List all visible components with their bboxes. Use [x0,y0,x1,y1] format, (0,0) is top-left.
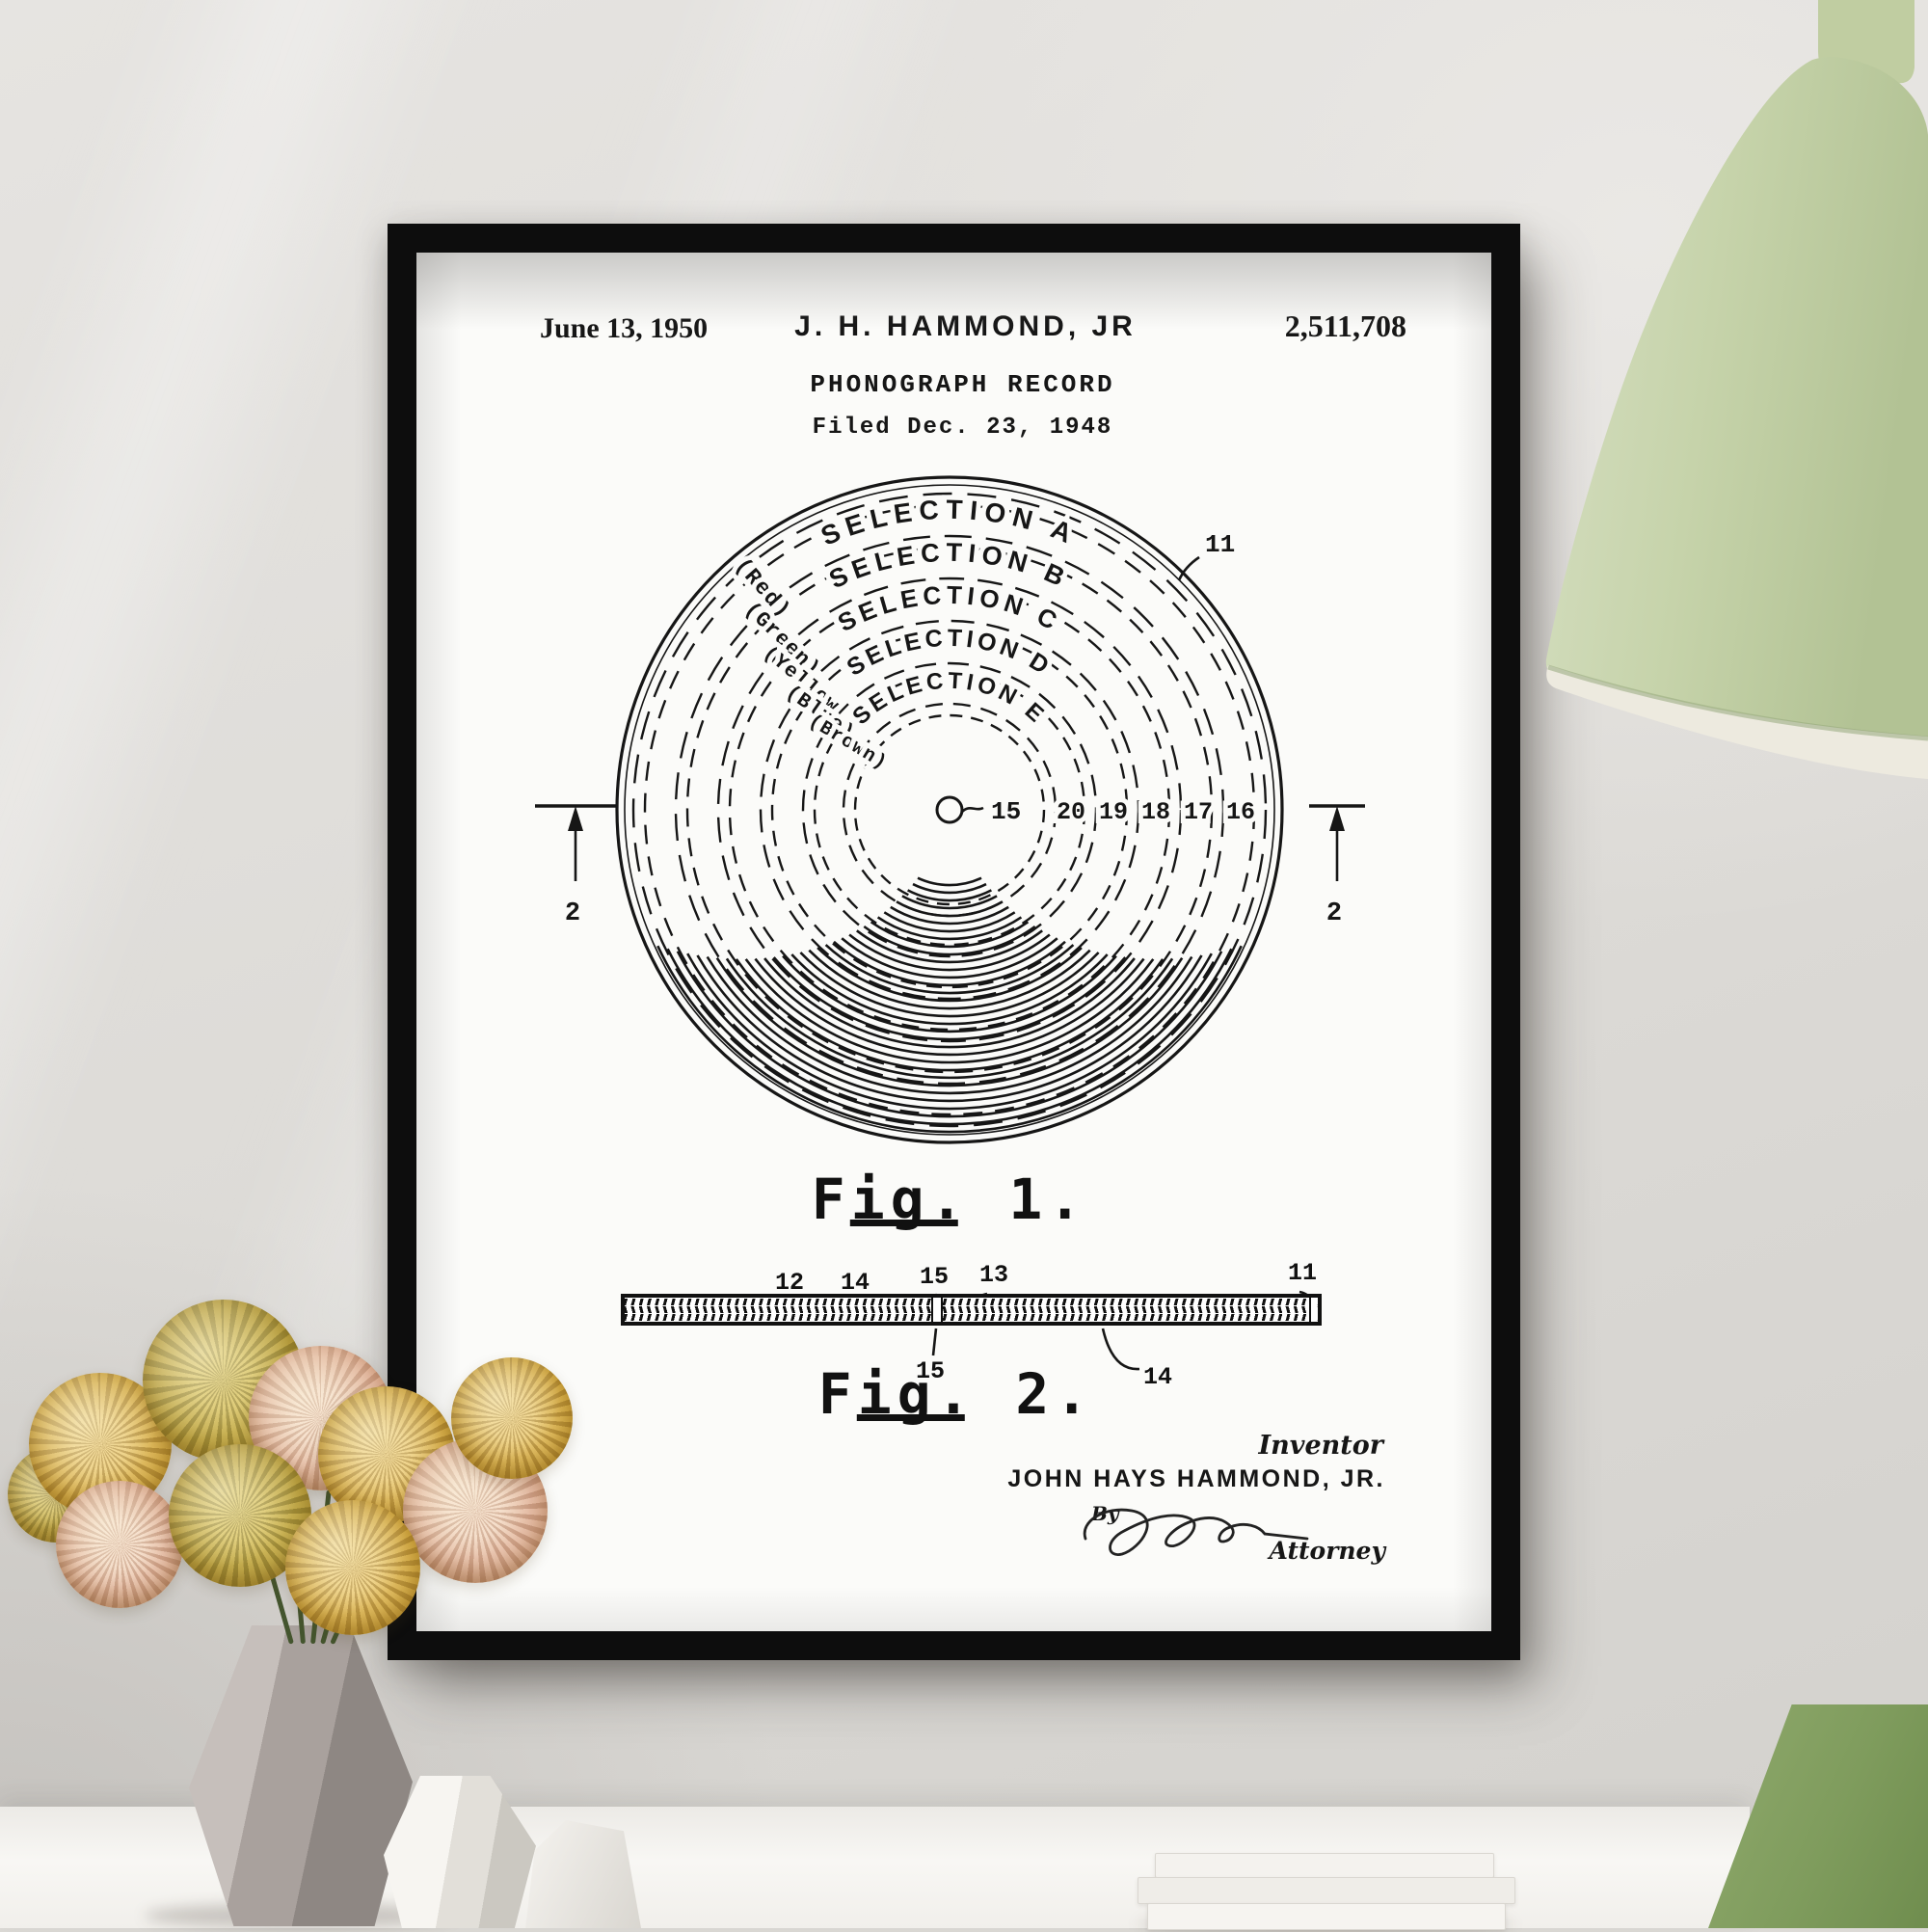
attorney-label: Attorney [1269,1537,1385,1565]
lamp-shade [1546,57,1928,742]
groove-hatch-sector [657,878,1241,1132]
section-marker-right: 2 [1309,806,1365,928]
fig1-record-diagram: SELECTION A SELECTION B SELECTION C SELE… [416,453,1491,1167]
bar-end-cap [1309,1298,1317,1322]
patent-number: 2,511,708 [1285,309,1406,344]
disc-outer-edge [617,477,1282,1142]
patent-sheet: June 13, 1950 J. H. HAMMOND, JR 2,511,70… [416,253,1491,1631]
color-label-yellow: (Yellow) [416,453,843,718]
band-color-labels: (Red) (Green) (Yellow) (Blue) (Brown) [416,453,891,775]
flower-bloom [451,1357,573,1479]
book [1155,1853,1494,1878]
pendant-lamp [1523,0,1928,829]
hatch-row-top [625,1299,1318,1305]
ref-15-center: 15 [991,797,1021,826]
selection-e-label: SELECTION E [847,668,1051,731]
book [1147,1903,1506,1930]
section-marker-left: 2 [535,806,617,928]
book-stack [1126,1853,1523,1928]
ref-2-right: 2 [1326,899,1342,928]
fig2-ref-12: 12 [775,1269,804,1297]
fig2-caption: Fig. 2. [818,1361,1094,1427]
fig2-ref-14-bottom: 14 [1143,1363,1172,1391]
ref-2-left: 2 [565,899,580,928]
flower-bloom [285,1500,420,1635]
hatch-row-middle [625,1306,1318,1313]
ref-17: 17 [1184,798,1213,826]
fig1-caption: Fig. 1. [812,1167,1087,1232]
patent-title: PHONOGRAPH RECORD [416,370,1491,399]
center-hole-joint [931,1298,943,1322]
ref-16: 16 [1226,798,1255,826]
fig2-ref-15-top: 15 [920,1263,949,1291]
inventor-label: Inventor [1259,1431,1383,1461]
band-reference-numbers: 20 19 18 17 16 [1057,798,1255,826]
svg-text:(Yellow): (Yellow) [416,453,843,718]
fig2-ref-14-top: 14 [841,1269,870,1297]
svg-text:SELECTION E: SELECTION E [847,668,1051,731]
selection-band-labels: SELECTION A SELECTION B SELECTION C SELE… [817,495,1083,731]
ref-18: 18 [1141,798,1170,826]
fig2-ref-11: 11 [1288,1259,1317,1287]
ref-19: 19 [1099,798,1128,826]
flower-bloom [56,1481,183,1608]
record-cross-section-bar [621,1294,1322,1326]
book [1138,1877,1515,1904]
hatch-row-bottom [625,1314,1318,1321]
fig2-ref-13: 13 [979,1261,1008,1289]
center-hole: 15 [937,797,1021,826]
edge-callout-11: 11 [1179,530,1235,580]
ref-11: 11 [1205,530,1235,559]
patent-filed-date: Filed Dec. 23, 1948 [416,415,1491,441]
ref-20: 20 [1057,798,1085,826]
